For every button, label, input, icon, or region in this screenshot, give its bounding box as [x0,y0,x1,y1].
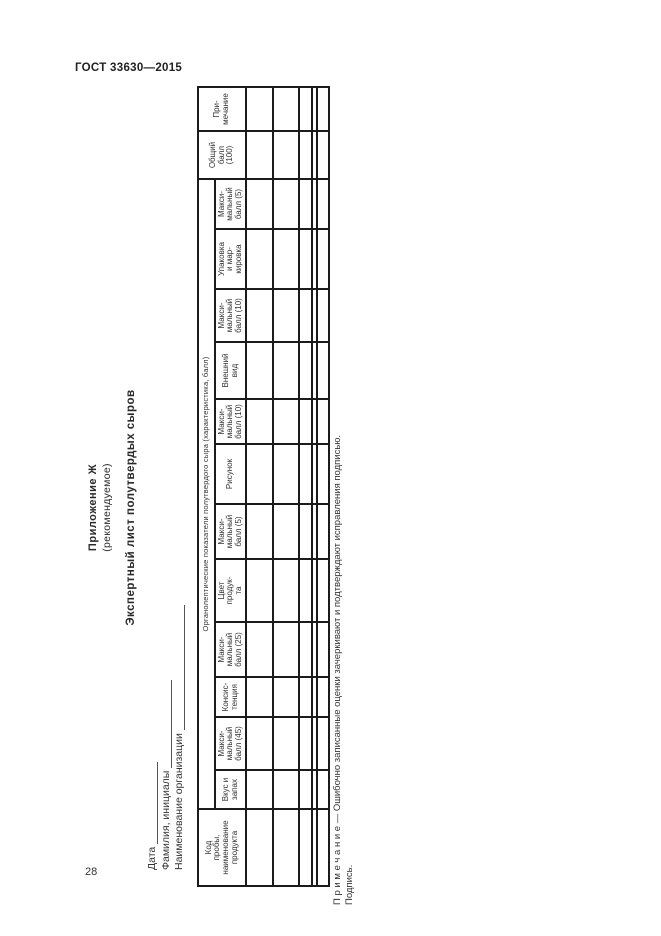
empty-cell [317,504,329,559]
empty-cell [299,342,312,399]
empty-cell [317,399,329,444]
empty-cell [246,399,273,444]
page-number: 28 [85,866,97,878]
empty-cell [273,677,299,717]
empty-cell [317,179,329,229]
empty-cell [273,179,299,229]
column-header-max-5b: Макси- мальный балл (5) [215,179,246,229]
empty-cell [246,717,273,770]
column-header-appearance: Внешний вид [215,342,246,399]
empty-cell [299,809,312,886]
form-label-organization: Наименование организации [173,733,185,870]
empty-cell [317,717,329,770]
empty-cell [246,809,273,886]
fill-in-line [161,680,172,768]
empty-cell [299,179,312,229]
column-header-total-score: Общий балл (100) [198,131,246,179]
empty-cell [273,809,299,886]
empty-cell [246,131,273,179]
empty-data-row [299,87,312,886]
note-text: П р и м е ч а н и е — Ошибочно записанны… [332,305,344,905]
empty-cell [246,504,273,559]
column-header-packaging: Упаковка и мар- кировка [215,229,246,289]
column-header-pattern: Рисунок [215,444,246,504]
column-header-max-45: Макси- мальный балл (45) [215,717,246,770]
empty-cell [317,229,329,289]
empty-cell [299,444,312,504]
column-header-max-10b: Макси- мальный балл (10) [215,289,246,342]
empty-cell [273,559,299,622]
empty-cell [317,87,329,131]
empty-cell [299,622,312,677]
empty-cell [299,131,312,179]
table-body: Код пробы, наименование продукта Органол… [198,87,329,886]
empty-cell [317,289,329,342]
note-signature: Подпись. [344,305,356,905]
empty-cell [317,677,329,717]
empty-cell [299,399,312,444]
empty-cell [273,399,299,444]
empty-cell [299,677,312,717]
empty-cell [246,559,273,622]
empty-cell [273,229,299,289]
form-label-name: Фамилия, инициалы [160,771,172,870]
rotated-content: Приложение Ж (рекомендуемое) Экспертный … [85,85,370,930]
empty-cell [299,229,312,289]
empty-cell [273,444,299,504]
empty-cell [317,809,329,886]
empty-cell [317,131,329,179]
empty-data-row [273,87,299,886]
empty-cell [299,87,312,131]
empty-cell [317,622,329,677]
empty-cell [246,87,273,131]
column-header-note: При- мечание [198,87,246,131]
column-header-sample-code: Код пробы, наименование продукта [198,809,246,886]
empty-cell [299,289,312,342]
group-header-row: Код пробы, наименование продукта Органол… [198,87,215,886]
column-header-consistency: Консис- тенция [215,677,246,717]
form-fields-block: Дата Фамилия, инициалы Наименование орга… [146,605,187,870]
appendix-type: (рекомендуемое) [101,85,113,930]
fill-in-line [147,762,158,844]
empty-cell [299,770,312,809]
empty-cell [246,770,273,809]
empty-cell [246,622,273,677]
empty-cell [273,717,299,770]
form-line-organization: Наименование организации [173,605,187,870]
expert-sheet-table: Код пробы, наименование продукта Органол… [197,86,330,887]
column-header-max-10a: Макси- мальный балл (10) [215,399,246,444]
empty-cell [317,770,329,809]
form-line-name: Фамилия, инициалы [160,605,174,870]
document-header: ГОСТ 33630—2015 [75,62,182,74]
column-header-max-25: Макси- мальный балл (25) [215,622,246,677]
form-line-date: Дата [146,605,160,870]
empty-data-row [317,87,329,886]
empty-cell [317,444,329,504]
column-header-taste-smell: Вкус и запах [215,770,246,809]
empty-data-row [246,87,273,886]
empty-cell [273,342,299,399]
sheet-title: Экспертный лист полутвердых сыров [125,85,137,930]
column-header-color: Цвет продук- та [215,559,246,622]
empty-cell [246,229,273,289]
fill-in-line [174,605,185,730]
note-block: П р и м е ч а н и е — Ошибочно записанны… [332,305,356,905]
column-header-max-5a: Макси- мальный балл (5) [215,504,246,559]
empty-cell [299,559,312,622]
column-group-header: Органолептические показатели полутвердог… [198,179,215,809]
empty-cell [273,770,299,809]
empty-cell [273,504,299,559]
empty-cell [317,342,329,399]
empty-cell [273,87,299,131]
empty-cell [273,622,299,677]
empty-cell [246,179,273,229]
empty-cell [246,677,273,717]
empty-cell [299,717,312,770]
appendix-label: Приложение Ж [87,85,99,930]
empty-cell [273,289,299,342]
form-label-date: Дата [146,847,158,870]
empty-cell [246,342,273,399]
empty-cell [317,559,329,622]
column-name-row: Вкус и запах Макси- мальный балл (45) Ко… [215,87,246,886]
empty-cell [273,131,299,179]
empty-cell [299,504,312,559]
empty-cell [246,444,273,504]
empty-cell [246,289,273,342]
